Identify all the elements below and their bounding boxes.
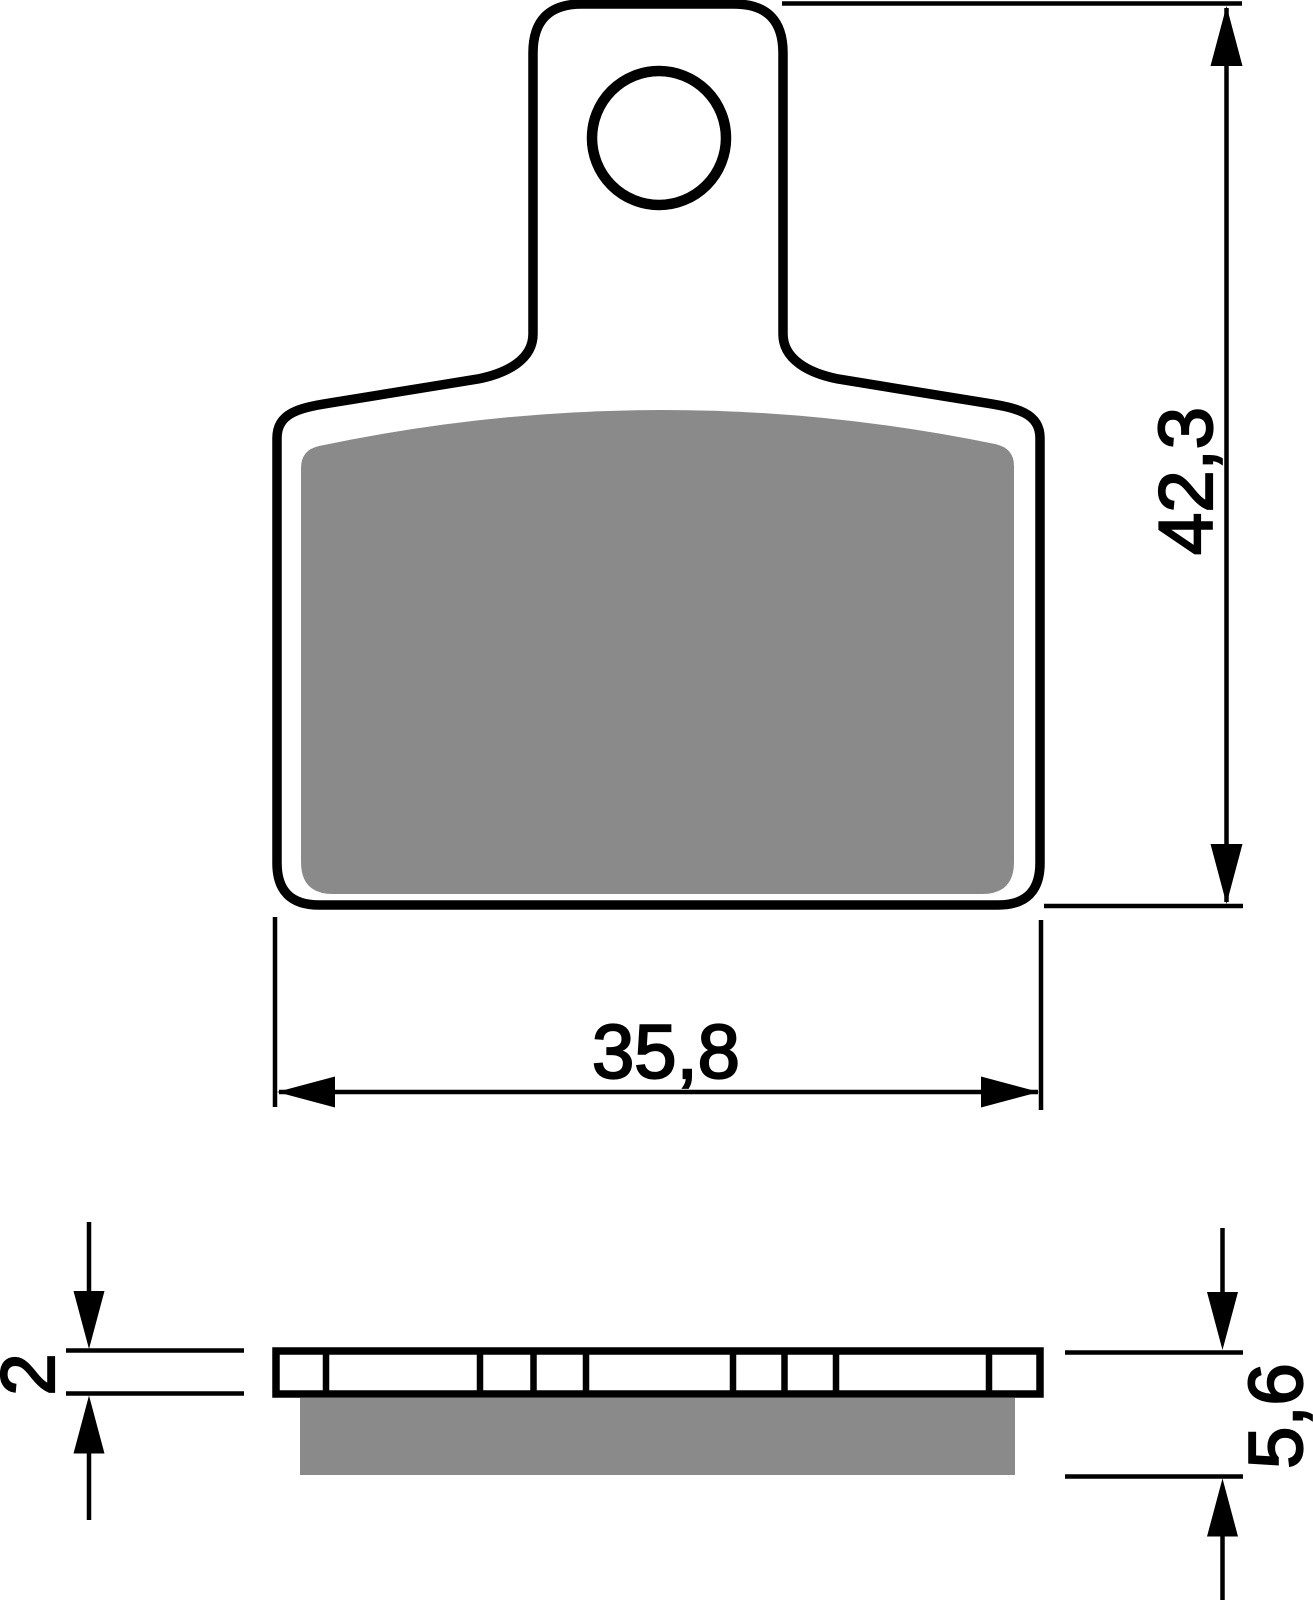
svg-text:5,6: 5,6	[1234, 1363, 1313, 1469]
svg-text:35,8: 35,8	[592, 1010, 740, 1095]
svg-text:42,3: 42,3	[1144, 407, 1229, 555]
svg-text:2: 2	[0, 1353, 71, 1395]
